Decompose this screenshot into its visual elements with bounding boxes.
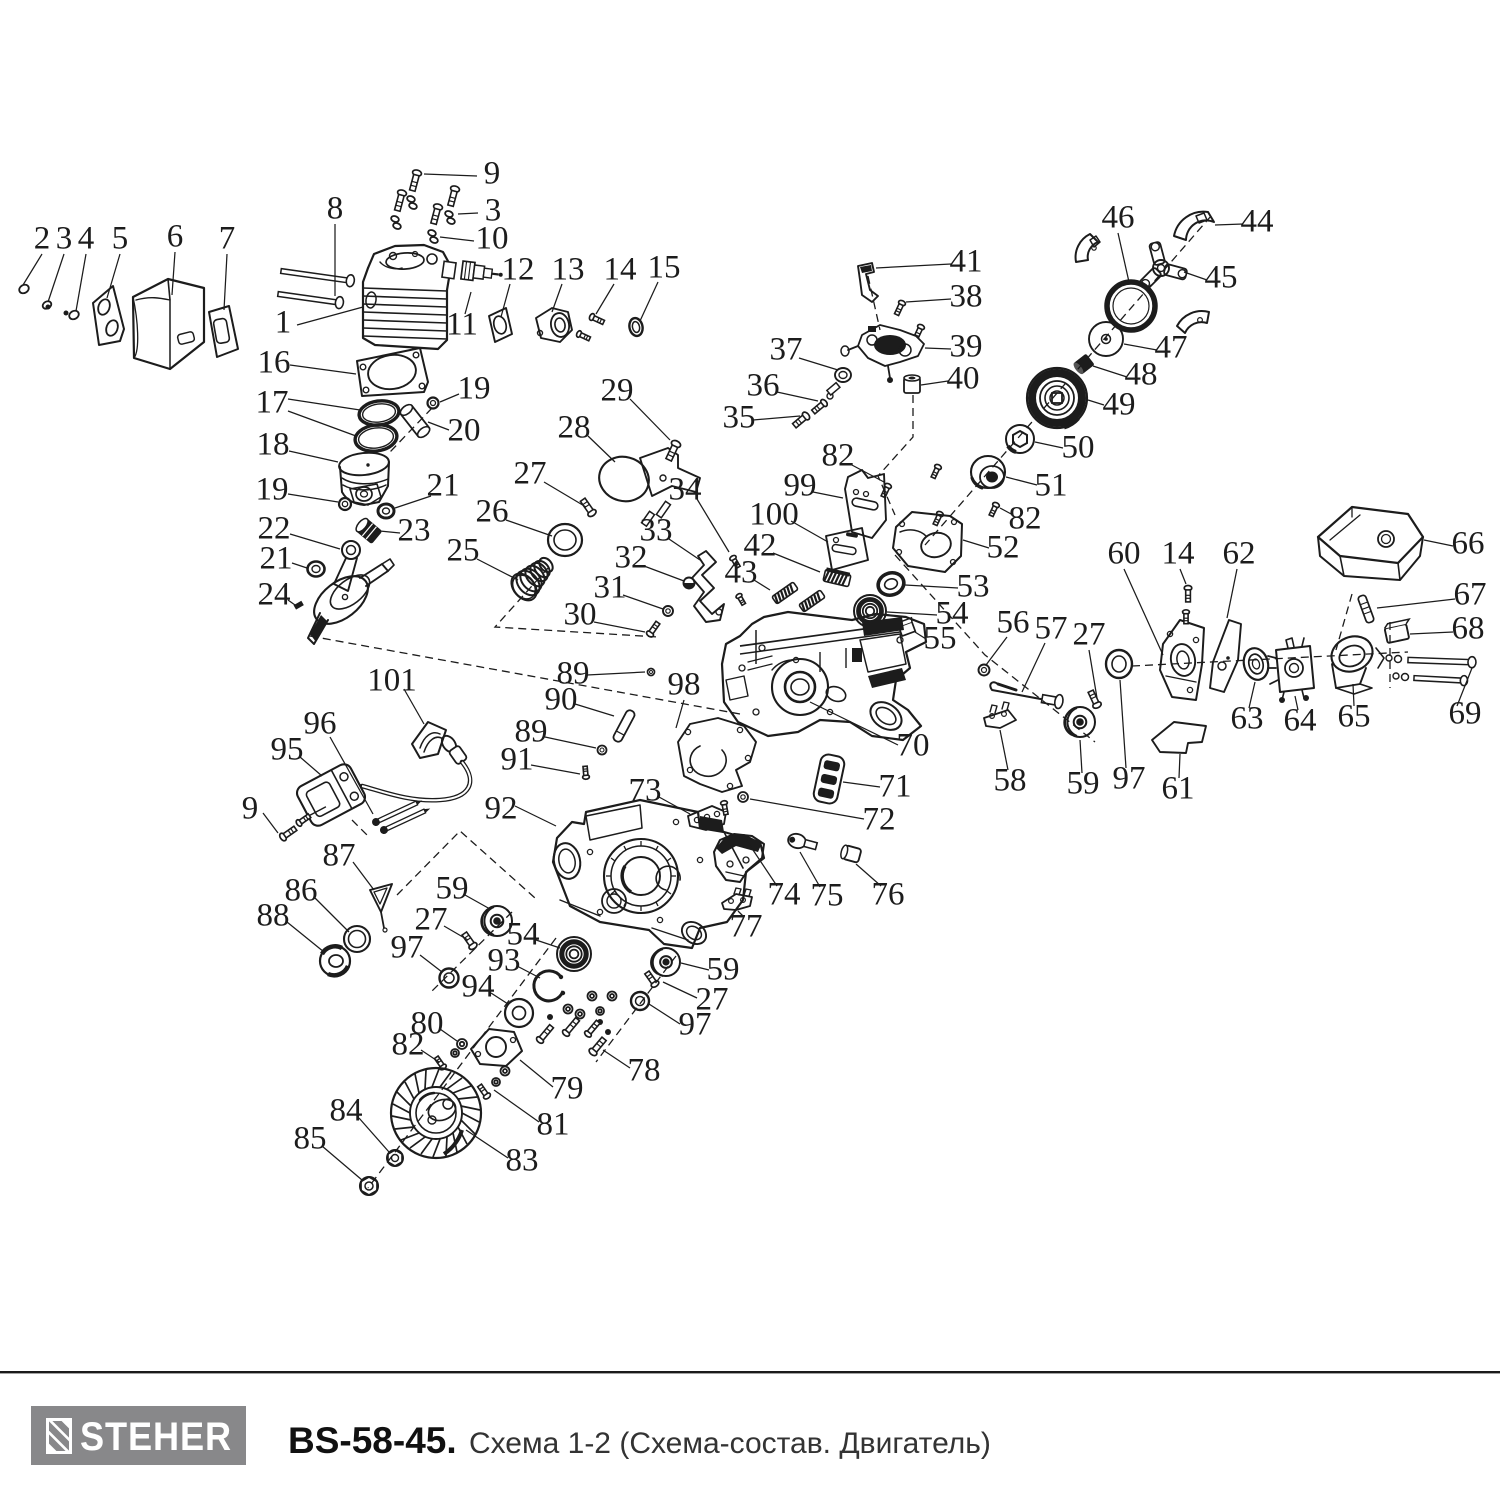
svg-text:73: 73 (629, 773, 662, 809)
svg-text:BS-58-45. Схема 1-2 (Схема-сос: BS-58-45. Схема 1-2 (Схема-состав. Двига… (288, 1420, 991, 1461)
svg-text:14: 14 (604, 252, 637, 288)
svg-text:39: 39 (950, 329, 983, 365)
svg-text:40: 40 (947, 361, 980, 397)
svg-text:21: 21 (260, 541, 293, 577)
svg-text:71: 71 (879, 769, 912, 805)
svg-text:91: 91 (501, 742, 534, 778)
svg-text:46: 46 (1102, 200, 1135, 236)
svg-text:19: 19 (256, 472, 289, 508)
svg-text:78: 78 (628, 1053, 661, 1089)
svg-text:44: 44 (1241, 204, 1274, 240)
svg-text:8: 8 (327, 191, 344, 227)
svg-text:5: 5 (112, 221, 129, 257)
svg-text:63: 63 (1231, 701, 1264, 737)
svg-text:41: 41 (950, 244, 983, 280)
svg-text:45: 45 (1205, 260, 1238, 296)
svg-text:50: 50 (1062, 430, 1095, 466)
svg-text:26: 26 (476, 494, 509, 530)
svg-text:96: 96 (304, 706, 337, 742)
svg-text:68: 68 (1452, 611, 1485, 647)
svg-text:61: 61 (1162, 771, 1195, 807)
svg-text:81: 81 (537, 1107, 570, 1143)
svg-text:38: 38 (950, 279, 983, 315)
svg-text:70: 70 (897, 728, 930, 764)
svg-text:9: 9 (242, 791, 259, 827)
svg-text:18: 18 (257, 427, 290, 463)
svg-text:14: 14 (1162, 536, 1195, 572)
svg-text:62: 62 (1223, 536, 1256, 572)
svg-text:28: 28 (558, 410, 591, 446)
svg-text:90: 90 (545, 682, 578, 718)
svg-text:97: 97 (1113, 761, 1146, 797)
svg-text:3: 3 (56, 221, 73, 257)
svg-text:1: 1 (275, 305, 292, 341)
svg-text:98: 98 (668, 667, 701, 703)
svg-text:49: 49 (1103, 387, 1136, 423)
svg-text:STEHER: STEHER (80, 1415, 232, 1459)
svg-text:67: 67 (1454, 577, 1487, 613)
svg-text:4: 4 (78, 221, 95, 257)
svg-text:17: 17 (256, 385, 289, 421)
svg-text:64: 64 (1284, 703, 1317, 739)
svg-text:9: 9 (484, 156, 501, 192)
svg-text:69: 69 (1449, 696, 1482, 732)
svg-text:13: 13 (552, 252, 585, 288)
svg-text:57: 57 (1035, 611, 1068, 647)
svg-text:43: 43 (725, 555, 758, 591)
svg-text:60: 60 (1108, 536, 1141, 572)
svg-text:27: 27 (1073, 617, 1106, 653)
svg-text:82: 82 (392, 1027, 425, 1063)
svg-text:55: 55 (924, 621, 957, 657)
svg-text:27: 27 (514, 456, 547, 492)
svg-text:87: 87 (323, 838, 356, 874)
svg-text:11: 11 (446, 307, 478, 343)
svg-text:59: 59 (707, 952, 740, 988)
svg-text:82: 82 (822, 438, 855, 474)
svg-text:58: 58 (994, 763, 1027, 799)
svg-text:34: 34 (669, 472, 702, 508)
svg-text:47: 47 (1155, 330, 1188, 366)
svg-text:20: 20 (448, 413, 481, 449)
svg-text:52: 52 (987, 530, 1020, 566)
svg-text:36: 36 (747, 368, 780, 404)
svg-text:7: 7 (219, 221, 236, 257)
svg-text:84: 84 (330, 1093, 363, 1129)
svg-text:37: 37 (770, 332, 803, 368)
svg-text:25: 25 (447, 533, 480, 569)
svg-text:23: 23 (398, 513, 431, 549)
svg-text:56: 56 (997, 605, 1030, 641)
svg-text:74: 74 (768, 877, 801, 913)
svg-text:85: 85 (294, 1121, 327, 1157)
svg-text:101: 101 (367, 663, 417, 699)
svg-text:16: 16 (258, 345, 291, 381)
svg-text:35: 35 (723, 400, 756, 436)
svg-text:19: 19 (458, 371, 491, 407)
svg-text:59: 59 (1067, 766, 1100, 802)
svg-text:21: 21 (427, 468, 460, 504)
svg-text:15: 15 (648, 250, 681, 286)
svg-text:30: 30 (564, 597, 597, 633)
svg-text:95: 95 (271, 732, 304, 768)
svg-text:92: 92 (485, 791, 518, 827)
svg-text:2: 2 (34, 221, 51, 257)
svg-text:6: 6 (167, 219, 184, 255)
svg-text:88: 88 (257, 898, 290, 934)
svg-text:72: 72 (863, 802, 896, 838)
svg-text:12: 12 (502, 252, 535, 288)
svg-text:97: 97 (391, 930, 424, 966)
svg-text:83: 83 (506, 1143, 539, 1179)
svg-text:94: 94 (462, 969, 495, 1005)
svg-text:29: 29 (601, 373, 634, 409)
svg-text:66: 66 (1452, 526, 1485, 562)
svg-text:75: 75 (811, 878, 844, 914)
svg-text:24: 24 (258, 577, 291, 613)
svg-text:79: 79 (551, 1071, 584, 1107)
svg-text:77: 77 (730, 909, 763, 945)
svg-text:31: 31 (594, 570, 627, 606)
svg-text:51: 51 (1035, 468, 1068, 504)
